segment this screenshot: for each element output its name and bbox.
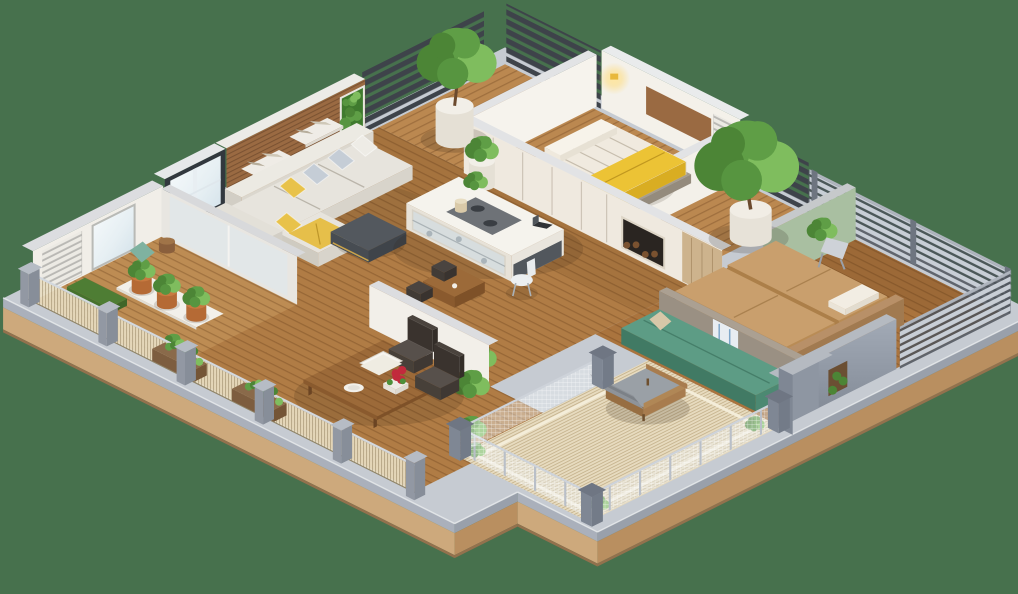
floorplan-svg (0, 0, 1018, 594)
floorplan-3d-render (0, 0, 1018, 594)
